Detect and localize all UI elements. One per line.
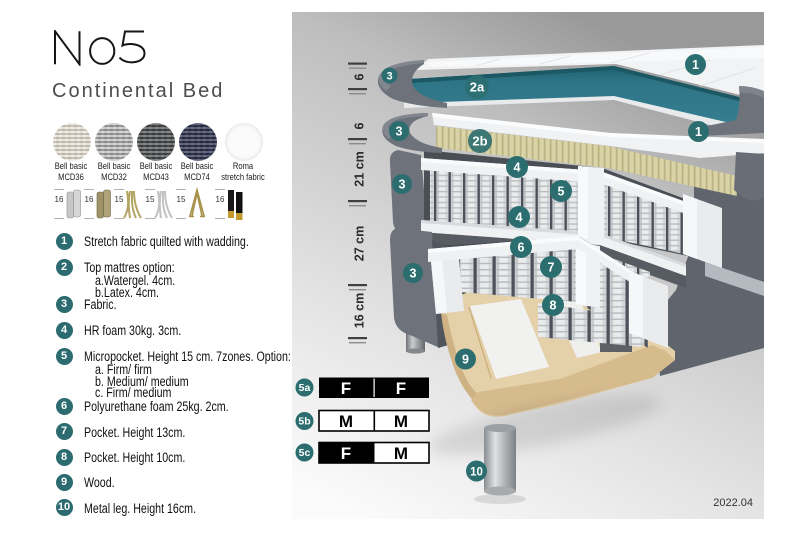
svg-text:1: 1 <box>695 125 702 139</box>
svg-text:2a: 2a <box>470 80 485 95</box>
svg-text:5c: 5c <box>299 447 311 459</box>
svg-text:F: F <box>341 379 351 398</box>
svg-text:F: F <box>396 379 406 398</box>
svg-text:21 cm: 21 cm <box>353 151 367 186</box>
svg-text:6: 6 <box>353 73 367 80</box>
svg-text:1: 1 <box>692 58 699 72</box>
svg-text:2022.04: 2022.04 <box>713 497 753 509</box>
svg-text:F: F <box>341 444 351 463</box>
svg-text:10: 10 <box>470 467 483 479</box>
svg-text:9: 9 <box>462 353 469 367</box>
svg-text:5a: 5a <box>299 382 311 394</box>
svg-text:3: 3 <box>410 267 417 281</box>
svg-text:6: 6 <box>518 241 525 255</box>
svg-text:7: 7 <box>548 261 555 275</box>
svg-text:4: 4 <box>514 161 521 175</box>
svg-text:M: M <box>394 444 408 463</box>
svg-text:8: 8 <box>550 299 557 313</box>
svg-text:3: 3 <box>396 125 403 139</box>
svg-text:3: 3 <box>399 178 406 192</box>
svg-text:16 cm: 16 cm <box>353 293 367 328</box>
svg-text:4: 4 <box>516 211 523 225</box>
svg-text:5b: 5b <box>298 416 310 428</box>
svg-text:M: M <box>339 412 353 431</box>
svg-text:3: 3 <box>386 71 392 83</box>
svg-text:M: M <box>394 412 408 431</box>
svg-text:27 cm: 27 cm <box>353 226 367 261</box>
svg-text:5: 5 <box>558 185 565 199</box>
svg-text:2b: 2b <box>472 134 487 149</box>
svg-text:6: 6 <box>353 122 367 129</box>
